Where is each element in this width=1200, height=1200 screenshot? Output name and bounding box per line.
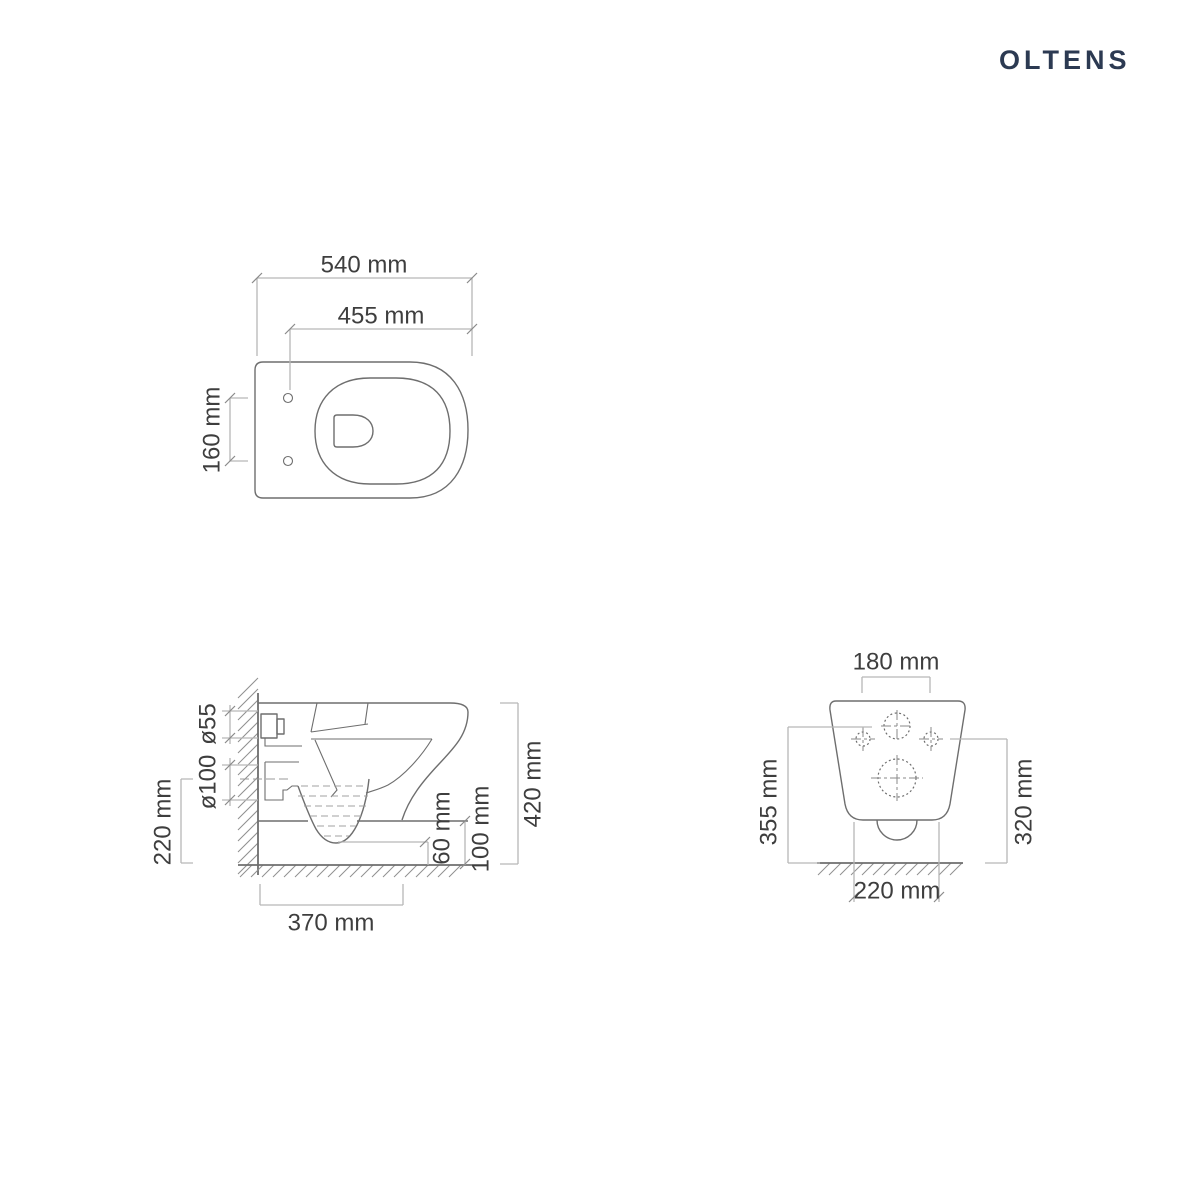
dim-label-540: 540 mm xyxy=(321,252,408,279)
dim-label-o55: ø55 xyxy=(195,703,222,744)
dim-label-455: 455 mm xyxy=(338,303,425,330)
inlet-pipe-cap xyxy=(277,719,284,734)
top-view: 540 mm 455 mm 160 mm xyxy=(199,252,478,499)
dimension-420: 420 mm xyxy=(500,703,547,864)
top-view-hinge-hole xyxy=(284,457,293,466)
dimension-160: 160 mm xyxy=(199,387,249,474)
dim-label-100: 100 mm xyxy=(468,786,495,873)
inlet-cavity xyxy=(265,738,302,746)
top-view-seat-opening xyxy=(315,378,450,484)
dim-label-355: 355 mm xyxy=(756,759,783,846)
dimension-180: 180 mm xyxy=(853,649,940,694)
dimension-o100: ø100 xyxy=(195,755,259,810)
wall-hatching xyxy=(238,678,258,874)
trap-outline xyxy=(298,779,369,843)
dim-label-160: 160 mm xyxy=(199,387,226,474)
technical-drawing-page: OLTENS 540 mm 45 xyxy=(0,0,1200,1200)
dimension-100: 100 mm xyxy=(460,786,495,873)
dimension-455: 455 mm xyxy=(285,303,477,391)
bolt-hole-right-crosshair xyxy=(919,727,943,751)
top-view-hinge-hole xyxy=(284,394,293,403)
brand-logo: OLTENS xyxy=(999,45,1131,76)
dim-label-220-back: 220 mm xyxy=(854,878,941,905)
drain-hole-crosshair xyxy=(871,755,923,801)
dimension-370: 370 mm xyxy=(260,884,403,937)
top-view-flush-hole xyxy=(334,415,373,447)
dimension-220-side: 220 mm xyxy=(150,779,194,866)
floor-hatching xyxy=(818,863,962,875)
bowl-back-interior xyxy=(366,739,432,793)
inlet-hole-crosshair xyxy=(881,710,913,742)
floor-hatching xyxy=(240,865,461,877)
drain-channel xyxy=(265,762,299,800)
side-view: ø55 ø100 220 mm 420 mm xyxy=(150,678,547,937)
dimension-320: 320 mm xyxy=(950,739,1038,863)
inlet-pipe xyxy=(261,714,277,738)
dim-label-220-side: 220 mm xyxy=(150,779,177,866)
dimension-diagram: 540 mm 455 mm 160 mm xyxy=(0,0,1200,1200)
back-view-outlet xyxy=(877,820,917,840)
bolt-hole-left-crosshair xyxy=(851,727,875,751)
dim-label-60: 60 mm xyxy=(429,791,456,864)
water-level-lines xyxy=(298,786,368,836)
dim-label-370: 370 mm xyxy=(288,910,375,937)
dim-label-420: 420 mm xyxy=(520,741,547,828)
top-view-body-outline xyxy=(255,362,468,498)
lid-section-lines xyxy=(311,703,432,739)
dim-label-320: 320 mm xyxy=(1011,759,1038,846)
back-view: 180 mm 355 mm 320 mm 220 mm xyxy=(756,649,1038,905)
dim-label-180: 180 mm xyxy=(853,649,940,676)
bowl-funnel-line xyxy=(315,740,337,797)
dim-label-o100: ø100 xyxy=(195,755,222,810)
